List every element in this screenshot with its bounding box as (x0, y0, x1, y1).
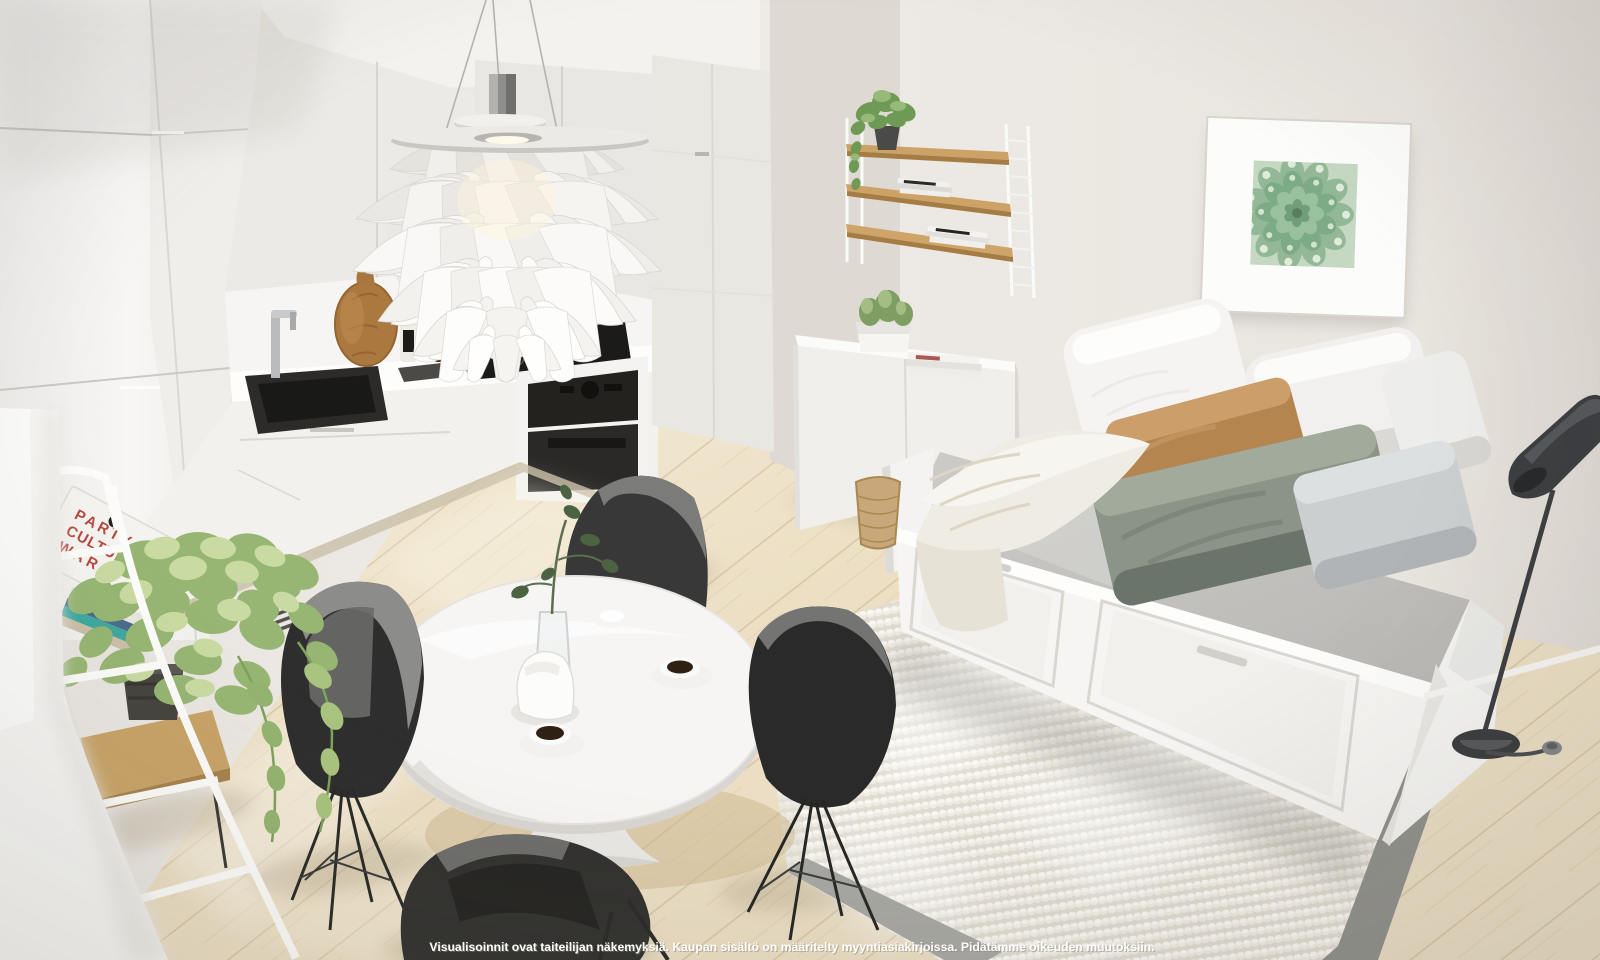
svg-text:Visualisoinnit ovat taiteilija: Visualisoinnit ovat taiteilijan näkemyks… (429, 940, 1154, 954)
